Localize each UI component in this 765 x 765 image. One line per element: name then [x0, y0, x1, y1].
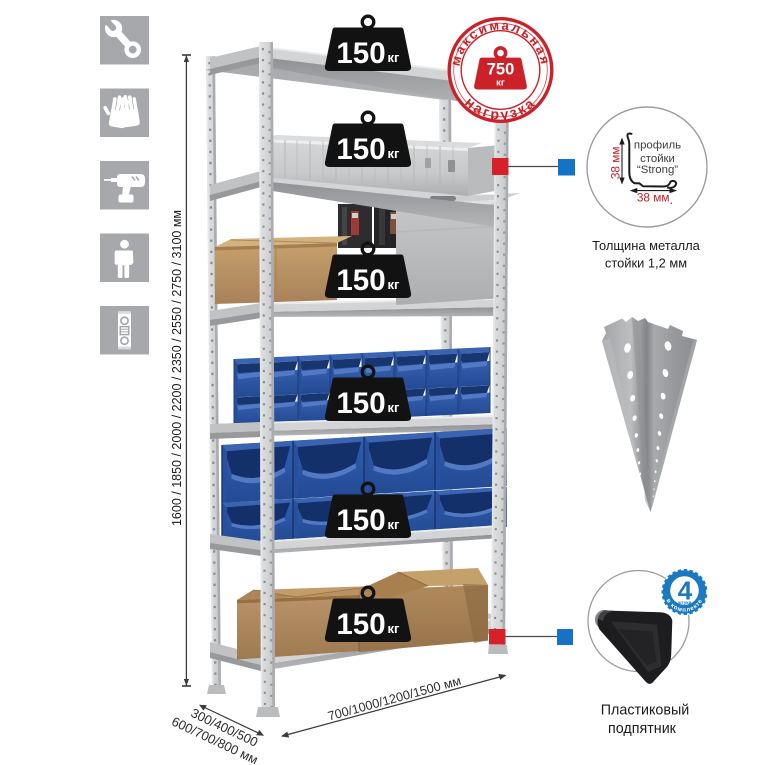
svg-text:150: 150 [336, 133, 385, 166]
svg-text:кг: кг [388, 277, 401, 292]
svg-text:стойки 1,2 мм: стойки 1,2 мм [605, 256, 687, 271]
svg-text:кг: кг [388, 146, 401, 161]
svg-text:кг: кг [388, 400, 401, 415]
svg-text:150: 150 [336, 37, 385, 70]
svg-text:1600 / 1850 / 2000 / 2200 / 23: 1600 / 1850 / 2000 / 2200 / 2350 / 2550 … [170, 210, 184, 526]
svg-text:кг: кг [388, 621, 401, 636]
svg-text:150: 150 [336, 608, 385, 641]
svg-text:150: 150 [336, 264, 385, 297]
svg-text:150: 150 [336, 387, 385, 420]
svg-text:штуки: штуки [678, 600, 692, 605]
svg-text:Пластиковый: Пластиковый [601, 703, 689, 719]
svg-text:профиль: профиль [634, 140, 681, 152]
svg-text:150: 150 [336, 504, 385, 537]
svg-text:кг: кг [388, 517, 401, 532]
svg-text:Толщина металла: Толщина металла [592, 238, 701, 253]
svg-text:“Strong”: “Strong” [637, 164, 678, 176]
svg-text:подпятник: подпятник [608, 721, 677, 737]
svg-text:750: 750 [487, 61, 515, 79]
svg-text:стойки: стойки [640, 153, 675, 165]
svg-text:кг: кг [496, 78, 505, 89]
svg-text:кг: кг [388, 50, 401, 65]
